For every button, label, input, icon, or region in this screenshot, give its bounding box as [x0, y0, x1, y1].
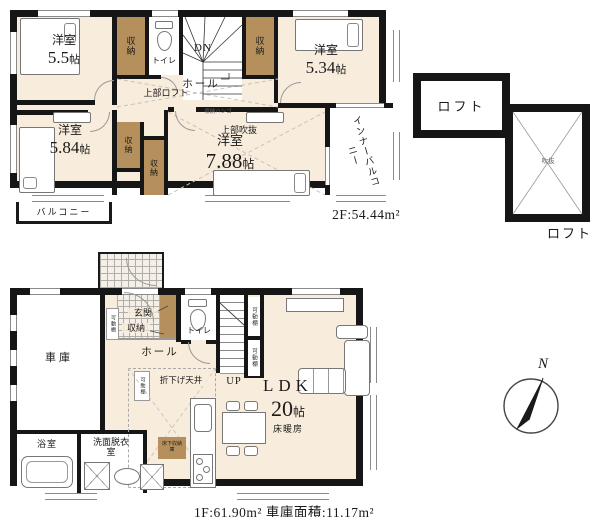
room-label-bedroom-5-5: 洋室 5.5帖: [28, 34, 100, 68]
closet-label: 収納: [123, 136, 134, 154]
chair: [226, 401, 240, 411]
chair: [226, 446, 240, 456]
wall-segment: [100, 295, 105, 434]
compass-north-label: N: [533, 356, 553, 373]
dresser: [246, 112, 284, 123]
wall-segment: [117, 168, 140, 172]
toilet-label: トイレ: [149, 56, 179, 65]
pantry-box: [140, 464, 164, 490]
wall-segment: [260, 295, 264, 378]
kitchen-sink: [194, 404, 212, 432]
floor2-closet-4: 収納: [144, 140, 164, 195]
movable-shelf-2: 可動棚: [248, 297, 260, 336]
storage-ladder-label: 収納ハシゴ: [196, 109, 240, 115]
room-label-bedroom-5-34: 洋室 5.34帖: [290, 44, 362, 78]
window: [10, 32, 17, 74]
upper-loft-label: 上部ロフト: [138, 88, 194, 98]
window: [293, 10, 348, 17]
room-size: 5.34: [306, 58, 336, 77]
loft-room-label: ロフト: [437, 96, 485, 115]
floor-heating-label: 床暖房: [258, 424, 318, 434]
toilet-tank: [155, 21, 173, 29]
upper-void-label: 上部吹抜: [208, 125, 270, 135]
wall-segment: [145, 17, 149, 75]
washing-machine: [84, 462, 110, 490]
washbasin: [114, 468, 140, 485]
hall-label: ホール: [138, 347, 182, 359]
stove-burner: [203, 466, 210, 473]
lowered-ceiling-label: 折下げ天井: [150, 376, 212, 386]
floor2-closet-1: 収納: [117, 17, 145, 75]
room-name: 洋室: [290, 44, 362, 58]
window: [393, 132, 400, 180]
room-name: 洋室: [34, 124, 106, 138]
floorplan-canvas: 収納 収納 収納 収納: [0, 0, 601, 517]
window: [237, 493, 329, 500]
loft-caption: ロフト: [536, 223, 592, 242]
window: [45, 493, 97, 500]
wall-segment: [242, 17, 246, 75]
floor2-closet-2: 収納: [246, 17, 274, 75]
closet-label: 収納: [254, 36, 267, 56]
toilet-tank: [188, 299, 207, 307]
shelf: [336, 325, 368, 339]
tv-board: [286, 298, 344, 312]
underfloor-storage: 床下収納庫: [158, 437, 186, 459]
floor2-closet-3: 収納: [117, 122, 140, 168]
garage-vent: [10, 385, 17, 401]
window: [393, 30, 400, 82]
inner-balcony-label: インナーバルコニー: [332, 116, 384, 192]
balcony: バルコニー: [16, 202, 112, 224]
window: [152, 10, 178, 17]
garage-label: 車庫: [30, 352, 88, 365]
window: [38, 10, 90, 17]
garage-vent: [10, 350, 17, 366]
balcony-label: バルコニー: [37, 205, 92, 218]
washroom-label: 洗面脱衣室: [90, 437, 132, 458]
pillow: [23, 177, 37, 189]
wall-segment: [140, 122, 144, 195]
sofa-back: [344, 340, 370, 396]
wall-segment: [17, 100, 95, 105]
window: [336, 195, 386, 202]
entrance-storage-label: 収納: [122, 323, 150, 333]
loft-room: ロフト: [413, 73, 510, 138]
wall-segment: [112, 110, 117, 195]
room-label-bedroom-5-84: 洋室 5.84帖: [34, 124, 106, 158]
room-name: 洋室: [186, 134, 274, 149]
toilet-label: トイレ: [183, 326, 215, 335]
room-size: 5.84: [50, 138, 80, 157]
window: [370, 327, 377, 383]
window: [325, 147, 330, 185]
stove-burner: [196, 474, 203, 481]
window: [292, 288, 340, 295]
window: [32, 195, 104, 202]
window: [30, 288, 60, 295]
wall-segment: [144, 136, 164, 140]
pillow: [294, 173, 306, 193]
room-label-bedroom-7-88: 洋室 7.88帖: [186, 134, 274, 173]
window: [370, 395, 377, 470]
stairs-down-label: DN: [188, 42, 218, 55]
dresser: [53, 112, 91, 123]
room-size: 7.88: [206, 149, 243, 173]
ldk-size-label: 20帖: [252, 396, 324, 421]
garage-vent: [10, 315, 17, 331]
closet-label: 収納: [125, 36, 138, 56]
closet-label: 収納: [149, 159, 160, 177]
stove-burner: [196, 458, 203, 465]
stair-rail-line: [220, 373, 244, 374]
room-size: 5.5: [48, 48, 69, 67]
ldk-name-label: LDK: [252, 376, 324, 396]
bathroom-label: 浴室: [22, 439, 72, 449]
window: [185, 288, 211, 295]
window: [205, 195, 290, 202]
room-name: 洋室: [28, 34, 100, 48]
wall-segment: [77, 434, 81, 493]
window: [336, 103, 384, 108]
floor2-area-caption: 2F:54.44m²: [270, 207, 400, 223]
stairs-up-label: UP: [220, 376, 248, 388]
loft-void-label: 吹抜: [531, 158, 565, 165]
movable-shelf-3: 可動棚: [248, 340, 260, 376]
floor1-area-caption: 1F:61.90m² 車庫面積:11.17m²: [150, 501, 374, 517]
chair: [244, 446, 258, 456]
stairs-up-break-line: [220, 295, 244, 373]
window: [10, 125, 17, 173]
bathtub-inner: [26, 461, 68, 483]
